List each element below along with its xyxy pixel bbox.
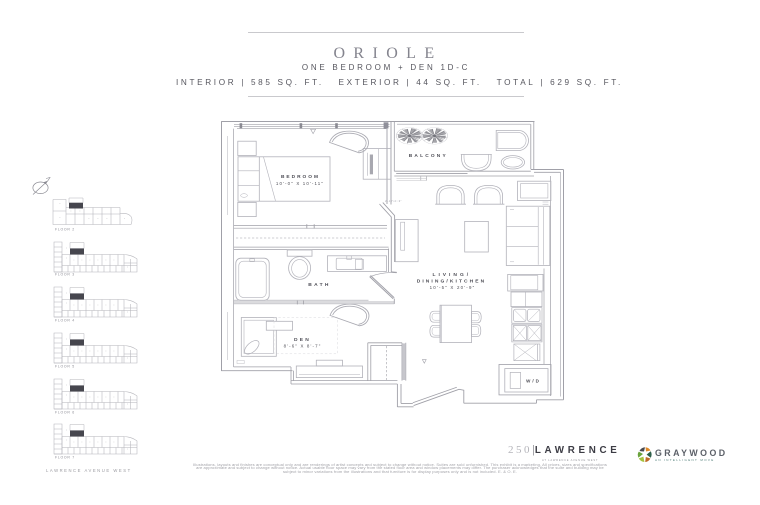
svg-text:BALCONY: BALCONY bbox=[409, 153, 448, 159]
svg-text:FLOOR 3: FLOOR 3 bbox=[55, 273, 75, 277]
svg-text:LAWRENCE AVENUE WEST: LAWRENCE AVENUE WEST bbox=[46, 468, 132, 473]
svg-text:FLOOR 5: FLOOR 5 bbox=[55, 364, 75, 368]
svg-text:10'-0" X 10'-11": 10'-0" X 10'-11" bbox=[276, 181, 324, 186]
svg-text:2'-10"x1'-9": 2'-10"x1'-9" bbox=[385, 199, 402, 203]
svg-text:BATH: BATH bbox=[308, 282, 330, 288]
svg-text:FLOOR 2: FLOOR 2 bbox=[55, 227, 75, 231]
svg-text:8'-6" X 8'-7": 8'-6" X 8'-7" bbox=[284, 344, 322, 349]
svg-text:DINING/KITCHEN: DINING/KITCHEN bbox=[417, 278, 487, 284]
svg-text:10'-5" X 20'-9": 10'-5" X 20'-9" bbox=[430, 285, 476, 290]
svg-text:FLOOR 4: FLOOR 4 bbox=[55, 318, 75, 322]
svg-text:FLOOR 6: FLOOR 6 bbox=[55, 410, 75, 414]
svg-text:DEN: DEN bbox=[294, 337, 311, 343]
svg-text:BEDROOM: BEDROOM bbox=[281, 174, 320, 180]
svg-text:W/D: W/D bbox=[526, 378, 541, 383]
svg-text:LIVING/: LIVING/ bbox=[432, 272, 471, 278]
svg-text:FLOOR 7: FLOOR 7 bbox=[55, 455, 75, 459]
